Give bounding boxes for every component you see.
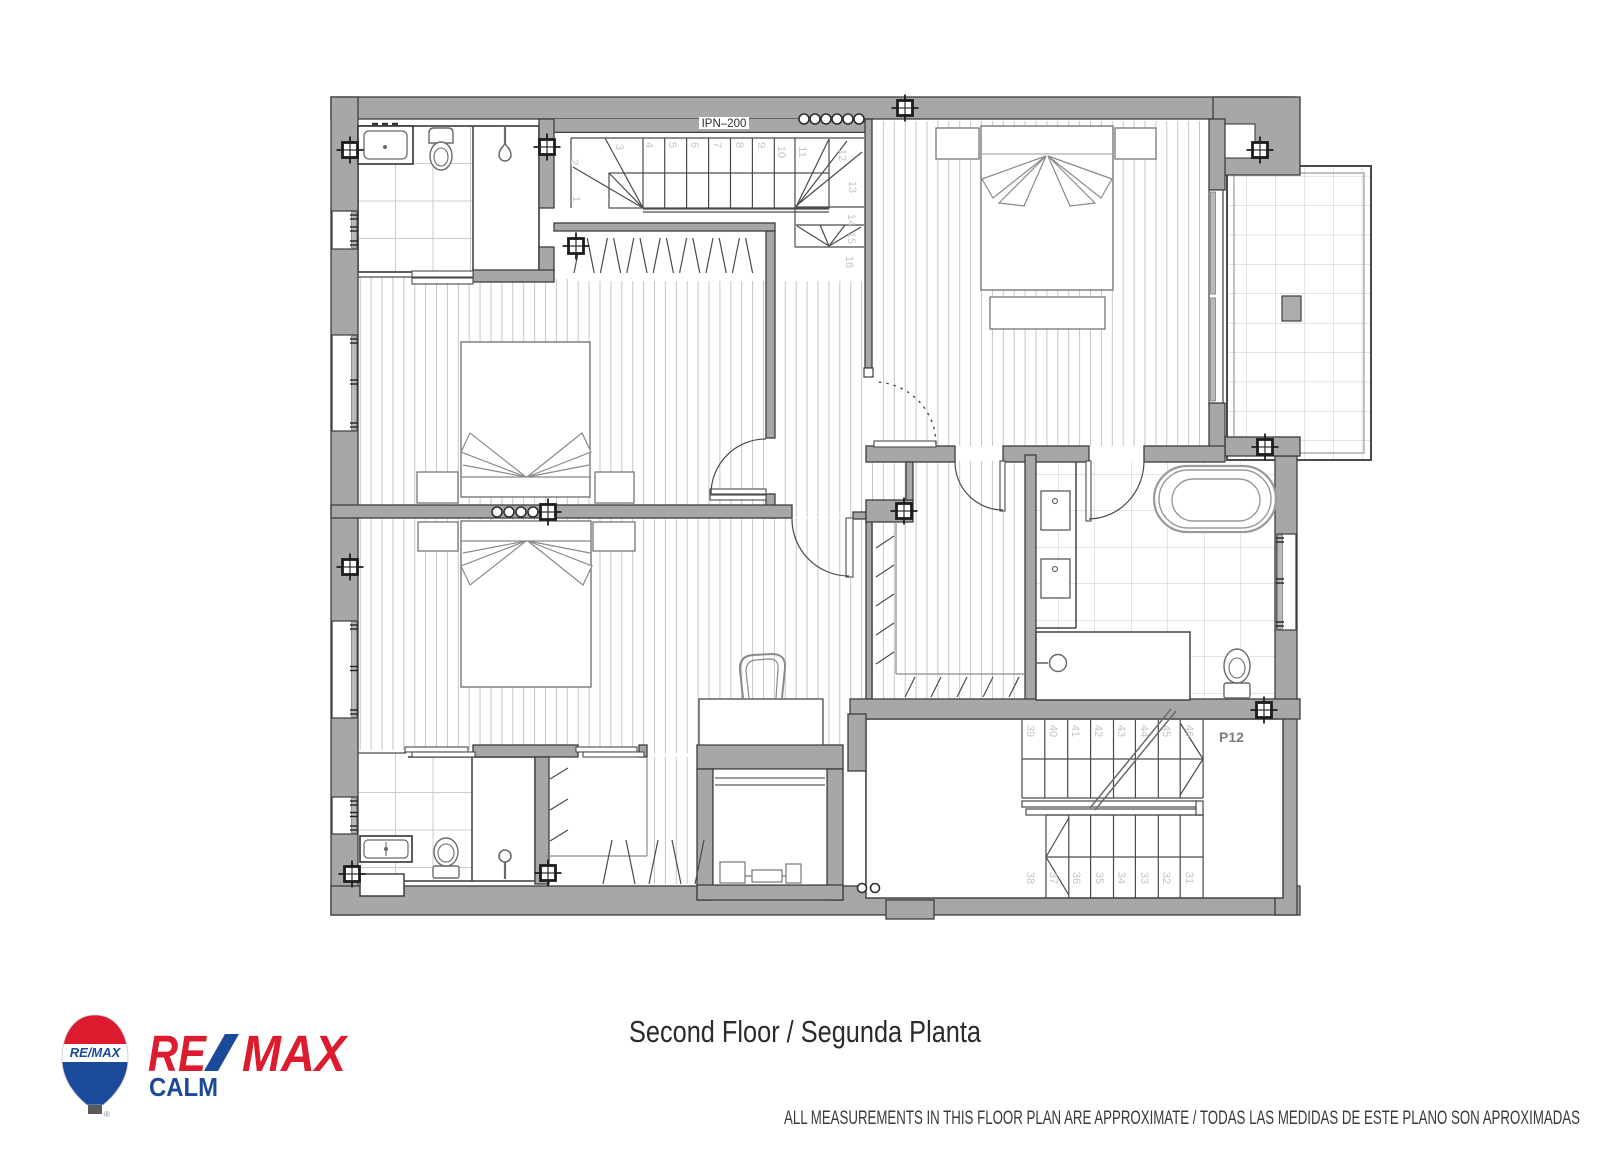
svg-text:®: ®: [104, 1110, 110, 1119]
svg-text:11: 11: [796, 146, 808, 157]
svg-text:36: 36: [1070, 872, 1082, 884]
svg-text:42: 42: [1092, 725, 1104, 737]
svg-text:41: 41: [1069, 725, 1081, 737]
svg-text:38: 38: [1024, 872, 1036, 884]
svg-text:5: 5: [666, 142, 678, 148]
svg-text:7: 7: [711, 142, 723, 148]
svg-text:43: 43: [1115, 725, 1127, 737]
svg-text:ALL MEASUREMENTS IN THIS FLOOR: ALL MEASUREMENTS IN THIS FLOOR PLAN ARE …: [784, 1108, 1580, 1129]
svg-text:40: 40: [1047, 725, 1059, 737]
svg-text:15: 15: [845, 232, 857, 244]
svg-text:3: 3: [613, 144, 625, 150]
svg-text:16: 16: [843, 256, 855, 268]
svg-text:37: 37: [1047, 872, 1059, 884]
svg-text:12: 12: [836, 149, 848, 161]
svg-text:13: 13: [846, 181, 858, 193]
svg-text:35: 35: [1093, 872, 1105, 884]
svg-text:MAX: MAX: [242, 1025, 349, 1082]
svg-text:2: 2: [568, 159, 580, 165]
svg-text:14: 14: [845, 214, 857, 226]
svg-text:RE/MAX: RE/MAX: [70, 1045, 122, 1060]
svg-text:9: 9: [755, 142, 767, 148]
svg-text:P12: P12: [1219, 729, 1244, 745]
svg-text:IPN–200: IPN–200: [702, 118, 747, 130]
svg-text:44: 44: [1138, 725, 1150, 737]
svg-text:39: 39: [1024, 725, 1036, 737]
svg-text:8: 8: [733, 142, 745, 148]
svg-text:4: 4: [643, 142, 655, 148]
svg-text:32: 32: [1160, 872, 1172, 884]
svg-text:CALM: CALM: [149, 1072, 218, 1102]
svg-text:10: 10: [775, 146, 787, 158]
svg-text:31: 31: [1183, 872, 1195, 884]
svg-text:33: 33: [1138, 872, 1150, 884]
svg-text:6: 6: [688, 142, 700, 148]
svg-text:34: 34: [1115, 872, 1127, 884]
svg-text:Second Floor / Segunda Planta: Second Floor / Segunda Planta: [629, 1014, 982, 1049]
svg-text:45: 45: [1160, 725, 1172, 737]
svg-text:46: 46: [1183, 725, 1195, 737]
svg-text:1: 1: [570, 196, 582, 202]
